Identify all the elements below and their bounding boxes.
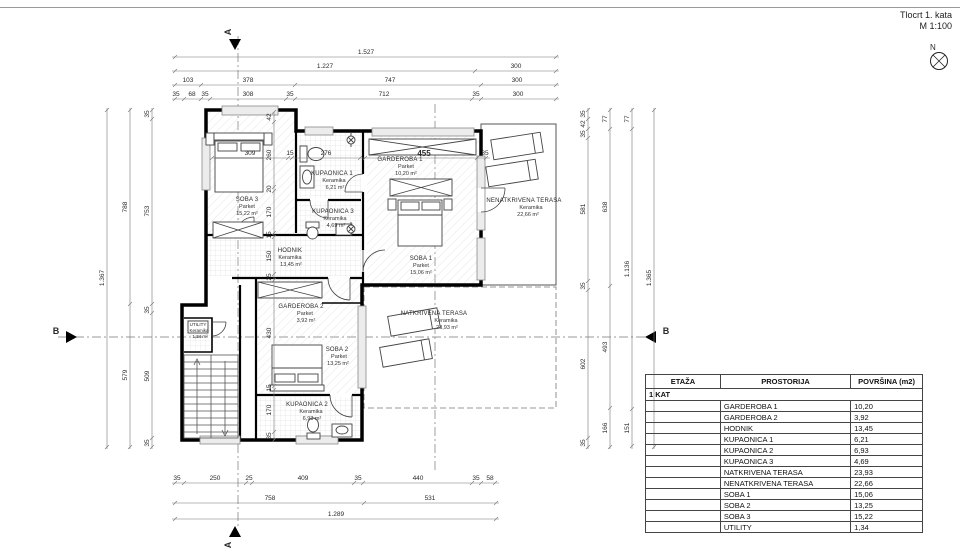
dim-label: 68 [188, 91, 196, 98]
room-label-kupaonica2: KUPAONICA 2 [286, 402, 328, 408]
dim-label: 25 [245, 475, 253, 482]
room-area-cell: 1,34 [851, 522, 923, 533]
dim-label: 1.527 [358, 49, 375, 56]
dim-label: 35 [580, 439, 587, 447]
room-area-cell: 15,22 [851, 511, 923, 522]
room-area-cell: 15,06 [851, 489, 923, 500]
room-label-natkrivena-terasa: NATKRIVENA TERASA [401, 311, 468, 317]
dim-label: 788 [122, 201, 129, 212]
room-area: 23,93 m² [436, 325, 458, 331]
room-name-cell: SOBA 1 [720, 489, 850, 500]
dim-label: 712 [379, 91, 390, 98]
room-label-nenatkrivena-terasa: NENATKRIVENA TERASA [486, 198, 561, 204]
room-name-cell: NENATKRIVENA TERASA [720, 478, 850, 489]
room-label-garderoba2: GARDEROBA 2 [278, 304, 324, 310]
table-row: SOBA 115,06 [646, 489, 923, 500]
room-name-cell: SOBA 2 [720, 500, 850, 511]
room-material: Keramika [322, 178, 346, 184]
dim-label: 35 [354, 475, 362, 482]
room-area: 15,22 m² [236, 211, 258, 217]
dim-labels-bottom: 35 250 25 409 35 440 35 58 758 531 1.289 [173, 475, 494, 518]
room-material: Parket [413, 263, 429, 269]
room-area-cell: 22,66 [851, 478, 923, 489]
dim-label: 35 [144, 306, 151, 314]
room-material: Parket [398, 164, 414, 170]
room-label-utility: UTILITY [190, 322, 207, 327]
dim-rows-top [172, 55, 559, 101]
dim-label: 58 [486, 475, 494, 482]
room-label-kupaonica1: KUPAONICA 1 [311, 171, 353, 177]
area-table-header-row: ETAŽA PROSTORIJA POVRŠINA (m2) [646, 375, 923, 389]
bed-soba3-icon [206, 133, 272, 192]
dim-label: 15 [286, 150, 294, 157]
drawing-page: Tlocrt 1. kata M 1:100 N A [0, 0, 960, 548]
table-row: HODNIK13,45 [646, 423, 923, 434]
room-area: 22,66 m² [517, 212, 539, 218]
north-arrow-icon: N [930, 43, 948, 70]
dim-cols-left [105, 108, 154, 449]
wardrobe-garderoba2-icon [258, 282, 322, 298]
section-marker-b-left: B [53, 326, 77, 343]
dim-label: 300 [512, 77, 523, 84]
table-row: NATKRIVENA TERASA23,93 [646, 467, 923, 478]
dim-label: 1.367 [99, 269, 106, 286]
dim-label: 42 [266, 113, 273, 121]
dim-label: 150 [266, 250, 273, 261]
room-label-hodnik: HODNIK [278, 248, 303, 254]
room-material: Keramika [323, 216, 347, 222]
room-material: Parket [297, 311, 313, 317]
room-label-soba3: SOBA 3 [236, 197, 259, 203]
dim-labels-top: 1.527 1.227 300 103 378 747 300 35 68 35… [172, 49, 523, 98]
dim-label: 35 [144, 110, 151, 118]
dim-label: 15 [266, 384, 273, 392]
room-area: 3,92 m² [297, 318, 316, 324]
toilet-kupaonica3-icon [306, 222, 319, 239]
room-material: Keramika [519, 205, 543, 211]
room-material: Keramika [434, 318, 458, 324]
room-area-cell: 23,93 [851, 467, 923, 478]
room-name-cell: GARDEROBA 1 [720, 401, 850, 412]
wardrobe-soba3-icon [213, 222, 263, 238]
col-header-prostorija: PROSTORIJA [720, 375, 850, 389]
dim-label: 170 [266, 404, 273, 415]
table-row: KUPAONICA 26,93 [646, 445, 923, 456]
sink-kupaonica1-icon [300, 166, 314, 188]
dim-label: 151 [624, 422, 631, 433]
dim-label: 638 [602, 201, 609, 212]
room-material: Keramika [189, 328, 209, 333]
floor-label: 1 KAT [646, 389, 923, 401]
dim-label: 1.136 [624, 260, 631, 277]
room-area: 15,06 m² [410, 270, 432, 276]
col-header-etaza: ETAŽA [646, 375, 721, 389]
dim-label: 15 [266, 231, 273, 239]
room-name-cell: KUPAONICA 1 [720, 434, 850, 445]
room-label-kupaonica3: KUPAONICA 3 [312, 209, 354, 215]
dim-label: 1.227 [317, 63, 334, 70]
dim-label: 170 [266, 206, 273, 217]
dim-label: 602 [580, 358, 587, 369]
room-name-cell: KUPAONICA 3 [720, 456, 850, 467]
section-marker-a-top: A [223, 28, 241, 50]
room-material: Parket [239, 204, 255, 210]
dim-label: 35 [580, 130, 587, 138]
dim-label: 35 [144, 439, 151, 447]
room-area-cell: 4,69 [851, 456, 923, 467]
section-marker-a-bottom: A [223, 526, 241, 548]
section-marker-b-right: B [645, 326, 670, 343]
bed-soba2-icon [270, 345, 324, 391]
north-label: N [930, 43, 936, 52]
room-area: 13,45 m² [280, 262, 302, 268]
dim-label: 378 [243, 77, 254, 84]
room-area-cell: 6,93 [851, 445, 923, 456]
dim-label: 300 [511, 63, 522, 70]
area-table: ETAŽA PROSTORIJA POVRŠINA (m2) 1 KAT GAR… [645, 374, 923, 533]
table-row: SOBA 315,22 [646, 511, 923, 522]
room-material: Keramika [278, 255, 302, 261]
room-label-soba1: SOBA 1 [410, 256, 433, 262]
dim-label: 747 [385, 77, 396, 84]
room-area-cell: 13,25 [851, 500, 923, 511]
room-material: Keramika [299, 409, 323, 415]
dim-label: 77 [602, 115, 609, 123]
dim-label: 35 [173, 475, 181, 482]
dim-label: 260 [266, 149, 273, 160]
bed-soba1-icon [388, 179, 452, 246]
staircase-icon [184, 355, 238, 438]
section-marker-a-bottom-label: A [223, 541, 233, 548]
room-material: Parket [331, 354, 347, 360]
dim-label: 753 [144, 205, 151, 216]
table-row: NENATKRIVENA TERASA22,66 [646, 478, 923, 489]
room-name-cell: HODNIK [720, 423, 850, 434]
table-row: KUPAONICA 34,69 [646, 456, 923, 467]
dim-label: 35 [580, 282, 587, 290]
dim-label: 300 [513, 91, 524, 98]
dim-label: 35 [580, 110, 587, 118]
section-marker-a-top-label: A [223, 28, 233, 35]
dim-label: 35 [472, 475, 480, 482]
dim-label: 440 [413, 475, 424, 482]
dim-label: 103 [183, 77, 194, 84]
room-name-cell: KUPAONICA 2 [720, 445, 850, 456]
room-area: 1,34 m² [192, 334, 208, 339]
dim-label: 531 [425, 495, 436, 502]
dim-label: 758 [265, 495, 276, 502]
room-label-soba2: SOBA 2 [326, 347, 349, 353]
dim-label: 493 [602, 341, 609, 352]
dim-label: 77 [624, 115, 631, 123]
dim-label: 308 [243, 91, 254, 98]
dim-label: 35 [481, 150, 489, 157]
col-header-povrsina: POVRŠINA (m2) [851, 375, 923, 389]
room-area-cell: 6,21 [851, 434, 923, 445]
sink-kupaonica2-icon [332, 424, 352, 437]
room-area-cell: 13,45 [851, 423, 923, 434]
room-area: 10,20 m² [395, 171, 417, 177]
dim-label: 166 [602, 422, 609, 433]
table-row: GARDEROBA 110,20 [646, 401, 923, 412]
room-name-cell: NATKRIVENA TERASA [720, 467, 850, 478]
dim-label: 35 [472, 91, 480, 98]
table-row: GARDEROBA 23,92 [646, 412, 923, 423]
dim-label: 309 [245, 150, 256, 157]
dim-label: 250 [210, 475, 221, 482]
room-area: 6,93 m² [303, 416, 322, 422]
dim-label: 25 [266, 273, 273, 281]
dim-label: 509 [144, 370, 151, 381]
table-row: KUPAONICA 16,21 [646, 434, 923, 445]
dim-label: 1.289 [328, 511, 345, 518]
dim-label: 579 [122, 369, 129, 380]
dim-label: 430 [266, 327, 273, 338]
dim-labels-right: 35 42 35 581 35 602 35 77 638 493 166 77… [580, 110, 653, 447]
room-name-cell: GARDEROBA 2 [720, 412, 850, 423]
dim-label: 1.365 [646, 269, 653, 286]
room-area: 6,21 m² [326, 185, 345, 191]
section-marker-b-right-label: B [663, 326, 670, 336]
dim-label: 35 [201, 91, 209, 98]
dim-label: 20 [266, 185, 273, 193]
dim-label: 42 [580, 120, 587, 128]
dim-label: 276 [321, 150, 332, 157]
dim-label: 35 [286, 91, 294, 98]
room-area: 4,69 m² [327, 223, 346, 229]
dim-label: 35 [266, 432, 273, 440]
room-label-garderoba1: GARDEROBA 1 [377, 157, 423, 163]
room-area-cell: 3,92 [851, 412, 923, 423]
room-name-cell: SOBA 3 [720, 511, 850, 522]
room-area-cell: 10,20 [851, 401, 923, 412]
dim-label: 35 [172, 91, 180, 98]
dim-label: 581 [580, 203, 587, 214]
room-name-cell: UTILITY [720, 522, 850, 533]
section-marker-b-left-label: B [53, 326, 60, 336]
table-row: SOBA 213,25 [646, 500, 923, 511]
table-row: UTILITY1,34 [646, 522, 923, 533]
dim-label: 409 [298, 475, 309, 482]
floor-band-row: 1 KAT [646, 389, 923, 401]
room-area: 13,25 m² [327, 361, 349, 367]
